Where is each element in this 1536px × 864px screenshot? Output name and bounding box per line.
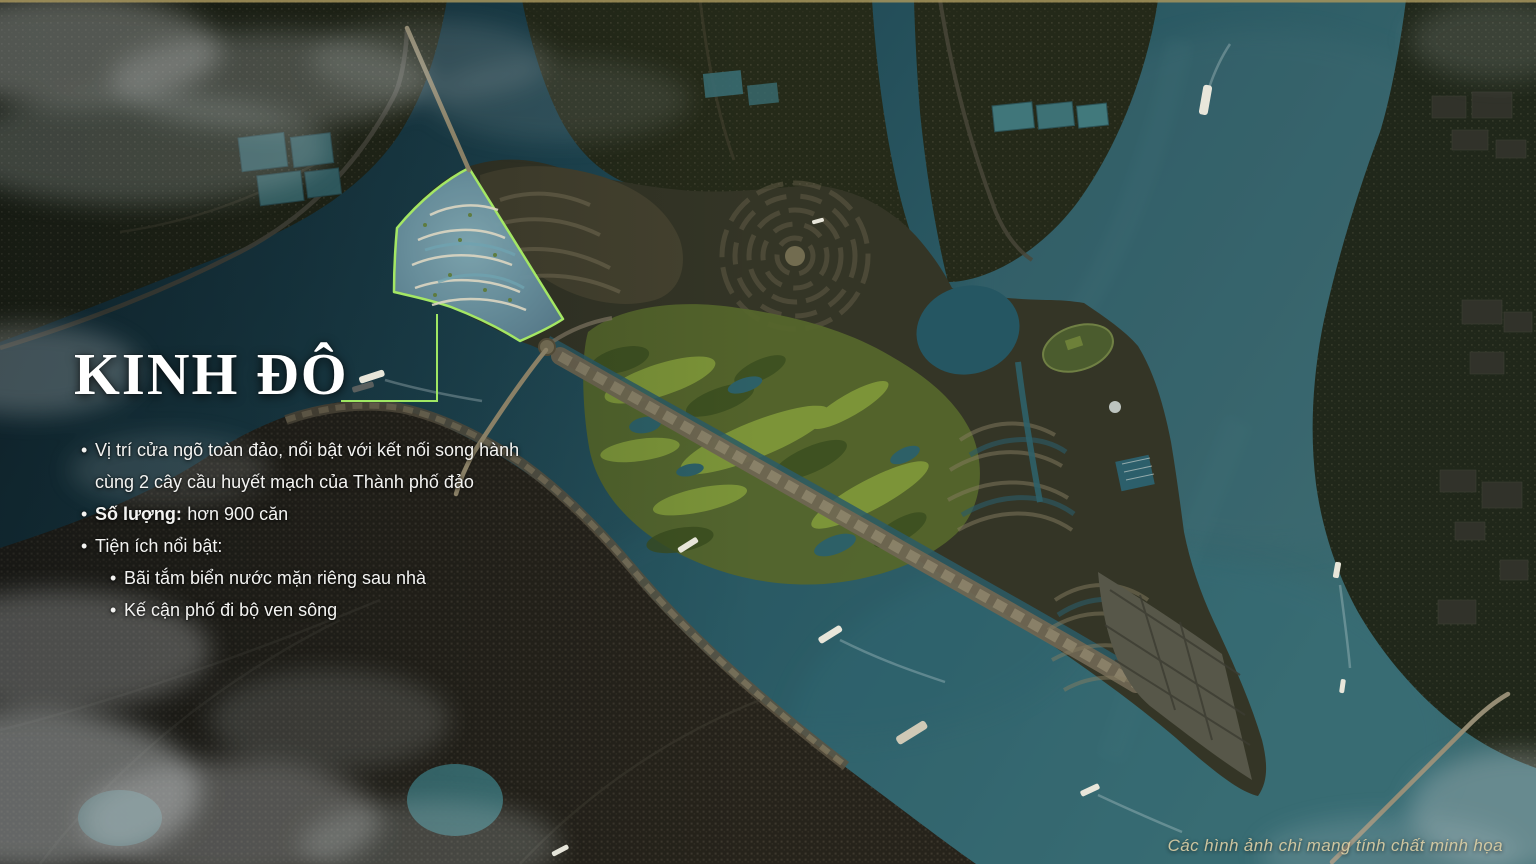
island-masterplan-map: {} <box>0 0 1536 864</box>
top-border-line <box>0 0 1536 3</box>
slide: {} KINH ĐÔ •Vị trí cửa ngõ toàn đảo, nổi… <box>0 0 1536 864</box>
